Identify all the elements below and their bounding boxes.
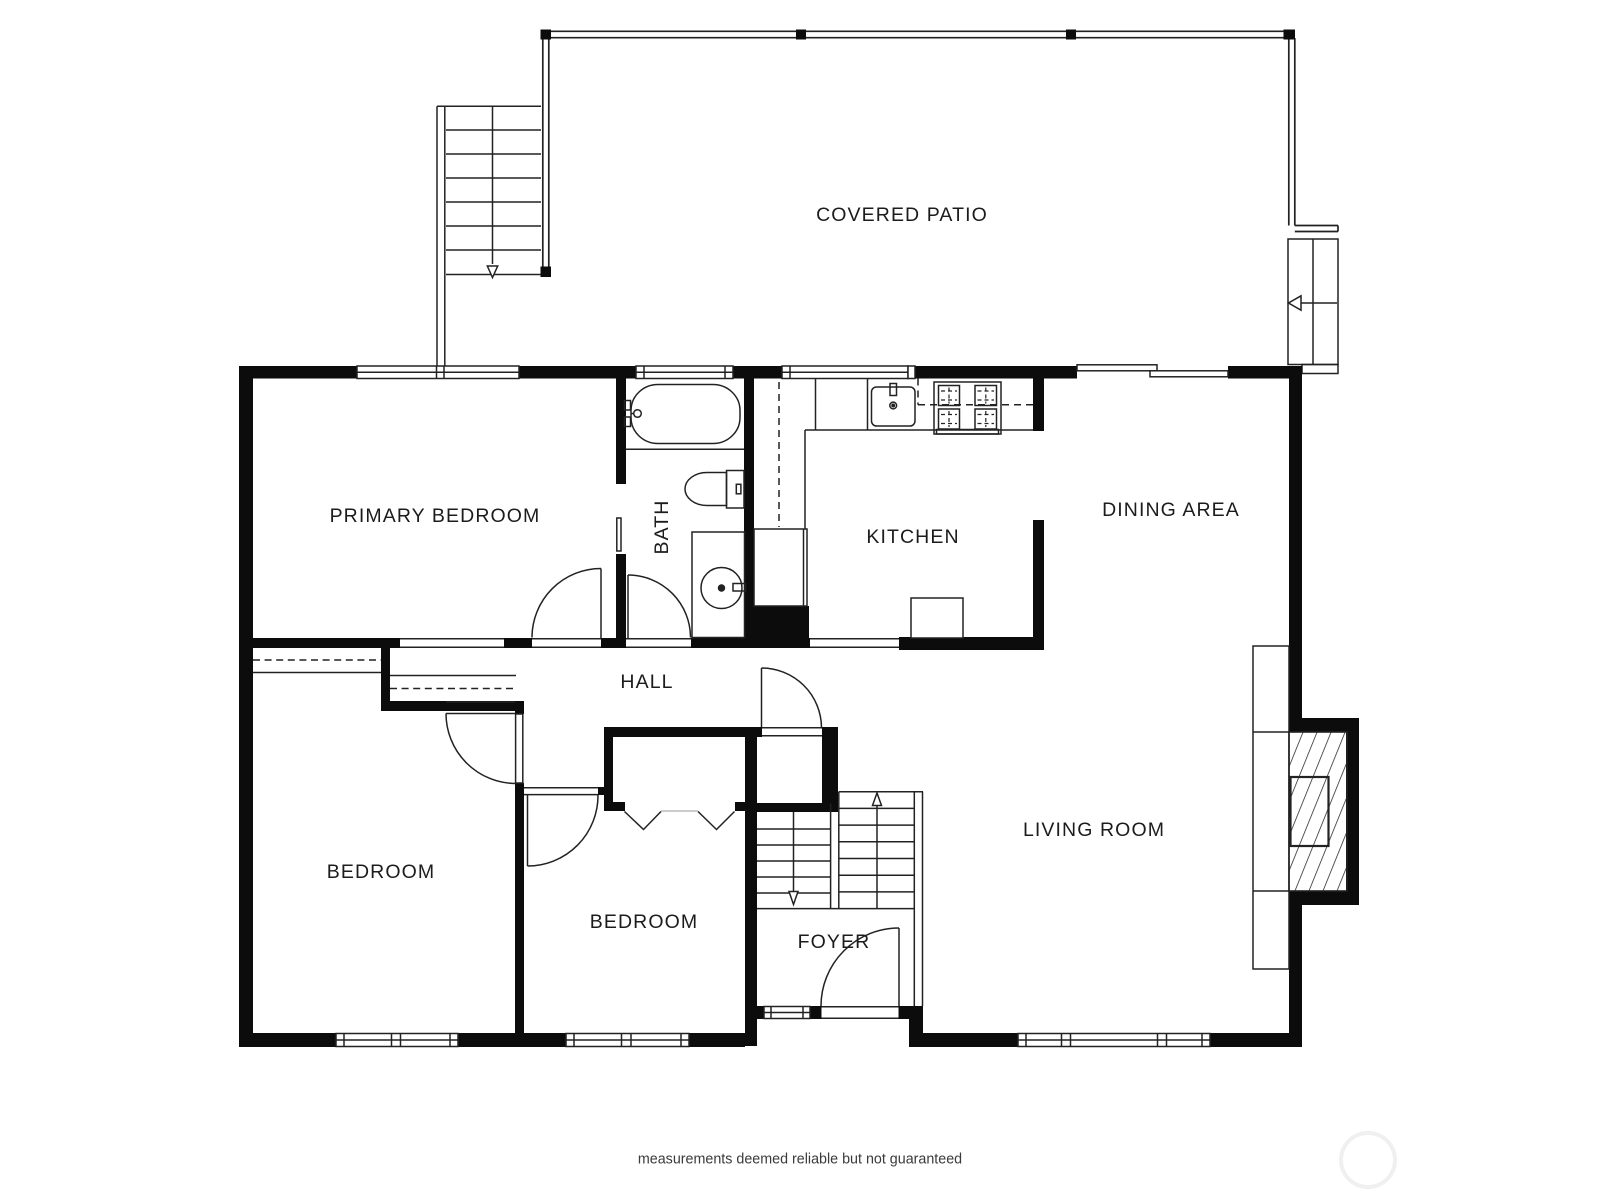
svg-text:measurements deemed reliable b: measurements deemed reliable but not gua…	[638, 1152, 962, 1168]
svg-text:LIVING ROOM: LIVING ROOM	[1023, 819, 1165, 841]
svg-text:PRIMARY BEDROOM: PRIMARY BEDROOM	[330, 505, 541, 527]
svg-text:HALL: HALL	[620, 671, 673, 693]
svg-text:DINING AREA: DINING AREA	[1102, 499, 1240, 521]
svg-text:FOYER: FOYER	[798, 931, 871, 953]
svg-text:BEDROOM: BEDROOM	[590, 911, 698, 933]
svg-text:BEDROOM: BEDROOM	[327, 861, 435, 883]
svg-text:KITCHEN: KITCHEN	[866, 526, 959, 548]
svg-text:BATH: BATH	[651, 500, 673, 555]
svg-text:COVERED PATIO: COVERED PATIO	[816, 204, 988, 226]
